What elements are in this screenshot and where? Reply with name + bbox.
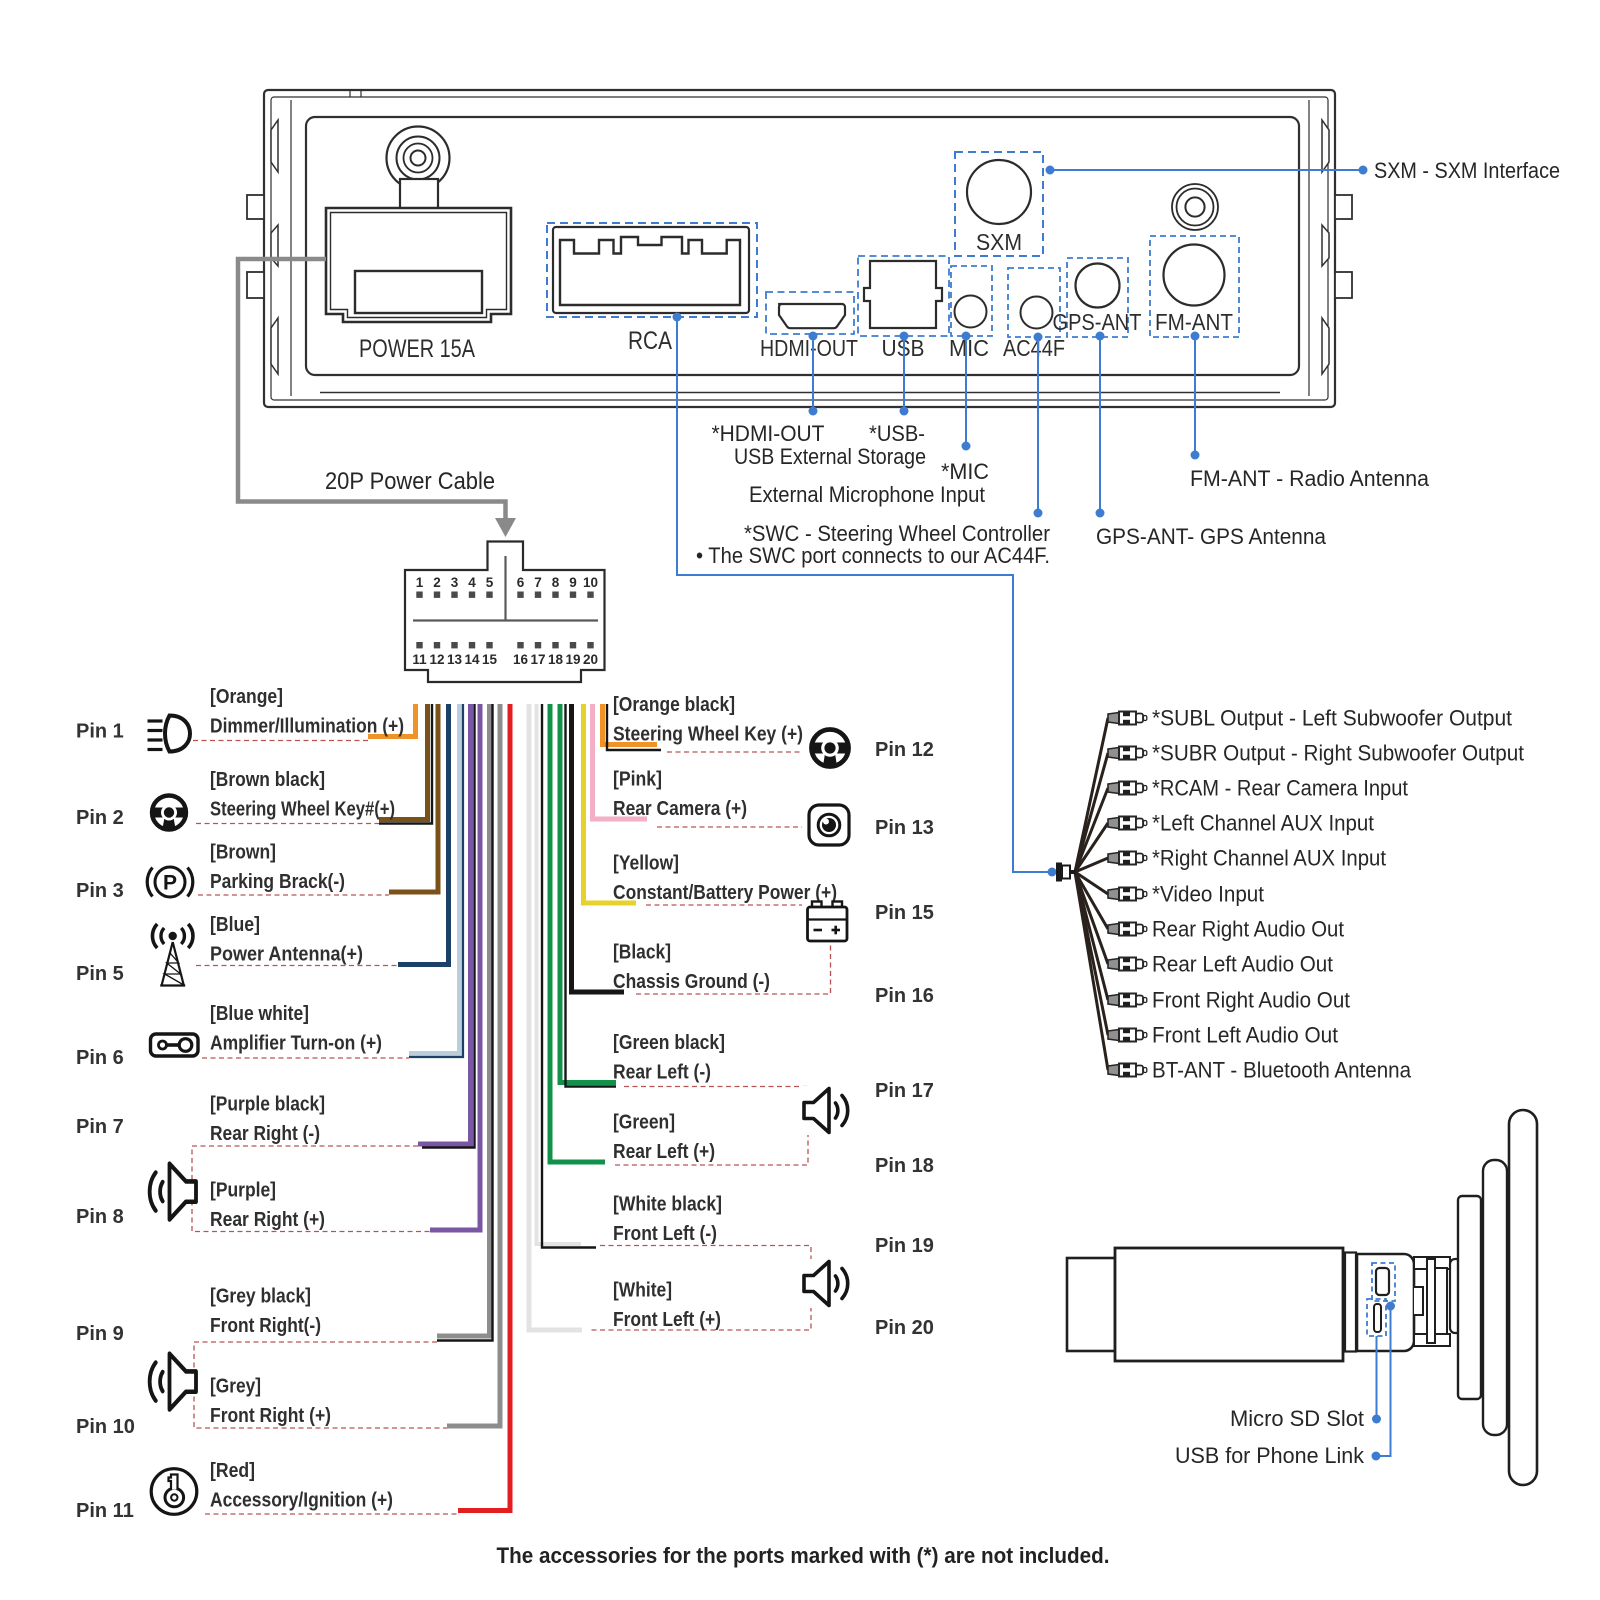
svg-text:14: 14 xyxy=(464,652,480,667)
svg-text:BT-ANT - Bluetooth Antenna: BT-ANT - Bluetooth Antenna xyxy=(1152,1058,1412,1083)
svg-text:Rear Left Audio Out: Rear Left Audio Out xyxy=(1152,952,1333,977)
svg-text:Rear Left (-): Rear Left (-) xyxy=(613,1062,711,1084)
svg-text:FM-ANT - Radio Antenna: FM-ANT - Radio Antenna xyxy=(1190,466,1430,491)
svg-text:Constant/Battery Power (+): Constant/Battery Power (+) xyxy=(613,882,837,904)
svg-text:11: 11 xyxy=(412,652,427,667)
svg-text:[Grey]: [Grey] xyxy=(210,1376,261,1398)
svg-text:*USB-: *USB- xyxy=(869,421,925,446)
svg-text:SXM: SXM xyxy=(976,229,1022,255)
svg-text:20: 20 xyxy=(583,652,598,667)
svg-text:Pin 5: Pin 5 xyxy=(76,963,124,985)
svg-text:15: 15 xyxy=(482,652,498,667)
svg-text:Front Right Audio Out: Front Right Audio Out xyxy=(1152,988,1350,1013)
svg-text:Pin 17: Pin 17 xyxy=(875,1080,934,1102)
svg-text:*Left Channel AUX Input: *Left Channel AUX Input xyxy=(1152,811,1374,836)
svg-text:7: 7 xyxy=(534,575,542,590)
svg-text:[Blue]: [Blue] xyxy=(210,914,260,936)
svg-text:[Yellow]: [Yellow] xyxy=(613,853,679,875)
svg-text:Pin 16: Pin 16 xyxy=(875,985,934,1007)
svg-text:8: 8 xyxy=(552,575,560,590)
svg-text:The accessories for the ports: The accessories for the ports marked wit… xyxy=(497,1543,1110,1568)
svg-text:*SUBL Output - Left Subwoofer: *SUBL Output - Left Subwoofer Output xyxy=(1152,706,1512,731)
svg-text:1: 1 xyxy=(416,575,424,590)
svg-text:[Pink]: [Pink] xyxy=(613,769,662,791)
svg-text:Pin 3: Pin 3 xyxy=(76,880,124,902)
svg-text:[Brown]: [Brown] xyxy=(210,842,276,864)
svg-text:GPS-ANT: GPS-ANT xyxy=(1053,309,1142,335)
svg-text:[Brown black]: [Brown black] xyxy=(210,769,325,791)
svg-text:10: 10 xyxy=(583,575,598,590)
svg-text:Front Left (-): Front Left (-) xyxy=(613,1223,717,1245)
svg-text:Rear Right (+): Rear Right (+) xyxy=(210,1209,325,1231)
svg-text:Pin 9: Pin 9 xyxy=(76,1323,124,1345)
svg-text:[Green]: [Green] xyxy=(613,1112,675,1134)
svg-text:Rear Right Audio Out: Rear Right Audio Out xyxy=(1152,917,1344,942)
svg-text:RCA: RCA xyxy=(628,327,672,355)
svg-text:• The SWC port connects to our: • The SWC port connects to our AC44F. xyxy=(696,543,1050,568)
svg-text:[White]: [White] xyxy=(613,1280,672,1302)
svg-text:Parking Brack(-): Parking Brack(-) xyxy=(210,871,345,893)
svg-text:FM-ANT: FM-ANT xyxy=(1155,309,1233,335)
svg-text:Front Right(-): Front Right(-) xyxy=(210,1315,321,1337)
svg-text:P: P xyxy=(163,872,177,895)
svg-text:5: 5 xyxy=(486,575,494,590)
svg-text:Dimmer/Illumination (+): Dimmer/Illumination (+) xyxy=(210,716,404,738)
svg-text:19: 19 xyxy=(565,652,580,667)
svg-text:Pin 8: Pin 8 xyxy=(76,1206,124,1228)
svg-text:Pin 15: Pin 15 xyxy=(875,902,934,924)
svg-text:Pin 10: Pin 10 xyxy=(76,1416,135,1438)
svg-text:[Purple black]: [Purple black] xyxy=(210,1094,325,1116)
svg-text:*Video Input: *Video Input xyxy=(1152,882,1264,907)
svg-text:Pin 13: Pin 13 xyxy=(875,817,934,839)
svg-text:Front Right (+): Front Right (+) xyxy=(210,1405,331,1427)
svg-text:[Blue white]: [Blue white] xyxy=(210,1003,309,1025)
svg-text:*SUBR Output - Right Subwoofer: *SUBR Output - Right Subwoofer Output xyxy=(1152,741,1524,766)
svg-text:*RCAM - Rear Camera Input: *RCAM - Rear Camera Input xyxy=(1152,776,1408,801)
svg-text:Pin 18: Pin 18 xyxy=(875,1155,934,1177)
svg-text:[Grey black]: [Grey black] xyxy=(210,1286,311,1308)
svg-text:9: 9 xyxy=(569,575,577,590)
svg-text:Pin 1: Pin 1 xyxy=(76,721,124,743)
svg-text:2: 2 xyxy=(433,575,441,590)
svg-text:Pin 7: Pin 7 xyxy=(76,1116,124,1138)
svg-text:USB External Storage: USB External Storage xyxy=(734,444,926,469)
svg-text:[Black]: [Black] xyxy=(613,942,671,964)
svg-text:4: 4 xyxy=(468,575,476,590)
svg-text:USB for Phone Link: USB for Phone Link xyxy=(1175,1443,1365,1468)
svg-text:Pin 19: Pin 19 xyxy=(875,1235,934,1257)
svg-text:Pin 6: Pin 6 xyxy=(76,1047,124,1069)
svg-text:18: 18 xyxy=(548,652,564,667)
svg-text:Power Antenna(+): Power Antenna(+) xyxy=(210,944,363,966)
svg-text:SXM - SXM Interface: SXM - SXM Interface xyxy=(1374,158,1560,183)
svg-text:Chassis Ground (-): Chassis Ground (-) xyxy=(613,971,770,993)
svg-text:[Orange]: [Orange] xyxy=(210,686,283,708)
svg-text:6: 6 xyxy=(517,575,525,590)
svg-text:Rear Right (-): Rear Right (-) xyxy=(210,1123,320,1145)
svg-text:*HDMI-OUT: *HDMI-OUT xyxy=(712,421,825,446)
svg-text:Rear Left (+): Rear Left (+) xyxy=(613,1141,715,1163)
svg-text:17: 17 xyxy=(530,652,545,667)
svg-text:[Orange black]: [Orange black] xyxy=(613,694,735,716)
svg-text:[Green black]: [Green black] xyxy=(613,1032,725,1054)
svg-text:12: 12 xyxy=(429,652,444,667)
svg-text:[White black]: [White black] xyxy=(613,1194,722,1216)
svg-text:Steering Wheel Key (+): Steering Wheel Key (+) xyxy=(613,724,803,746)
svg-text:Front Left Audio Out: Front Left Audio Out xyxy=(1152,1023,1338,1048)
svg-text:Pin 20: Pin 20 xyxy=(875,1317,934,1339)
svg-text:Amplifier Turn-on (+): Amplifier Turn-on (+) xyxy=(210,1033,382,1055)
svg-text:Steering Wheel Key#(+): Steering Wheel Key#(+) xyxy=(210,799,395,821)
svg-text:HDMI-OUT: HDMI-OUT xyxy=(760,335,858,361)
svg-text:Rear Camera (+): Rear Camera (+) xyxy=(613,798,747,820)
svg-text:Pin 2: Pin 2 xyxy=(76,807,124,829)
svg-text:GPS-ANT- GPS Antenna: GPS-ANT- GPS Antenna xyxy=(1096,524,1327,549)
svg-text:External Microphone Input: External Microphone Input xyxy=(749,482,985,507)
svg-text:*Right Channel AUX Input: *Right Channel AUX Input xyxy=(1152,846,1386,871)
svg-text:13: 13 xyxy=(447,652,463,667)
svg-text:20P Power Cable: 20P Power Cable xyxy=(325,468,495,495)
svg-text:Front Left (+): Front Left (+) xyxy=(613,1309,721,1331)
svg-text:Pin 11: Pin 11 xyxy=(76,1500,134,1522)
svg-text:*MIC: *MIC xyxy=(941,459,989,484)
svg-text:Pin 12: Pin 12 xyxy=(875,739,934,761)
svg-text:[Red]: [Red] xyxy=(210,1460,255,1482)
svg-text:Accessory/Ignition (+): Accessory/Ignition (+) xyxy=(210,1490,393,1512)
svg-text:[Purple]: [Purple] xyxy=(210,1180,276,1202)
svg-text:POWER 15A: POWER 15A xyxy=(359,335,475,363)
svg-text:16: 16 xyxy=(513,652,529,667)
svg-text:Micro SD Slot: Micro SD Slot xyxy=(1230,1406,1364,1431)
svg-text:3: 3 xyxy=(451,575,459,590)
